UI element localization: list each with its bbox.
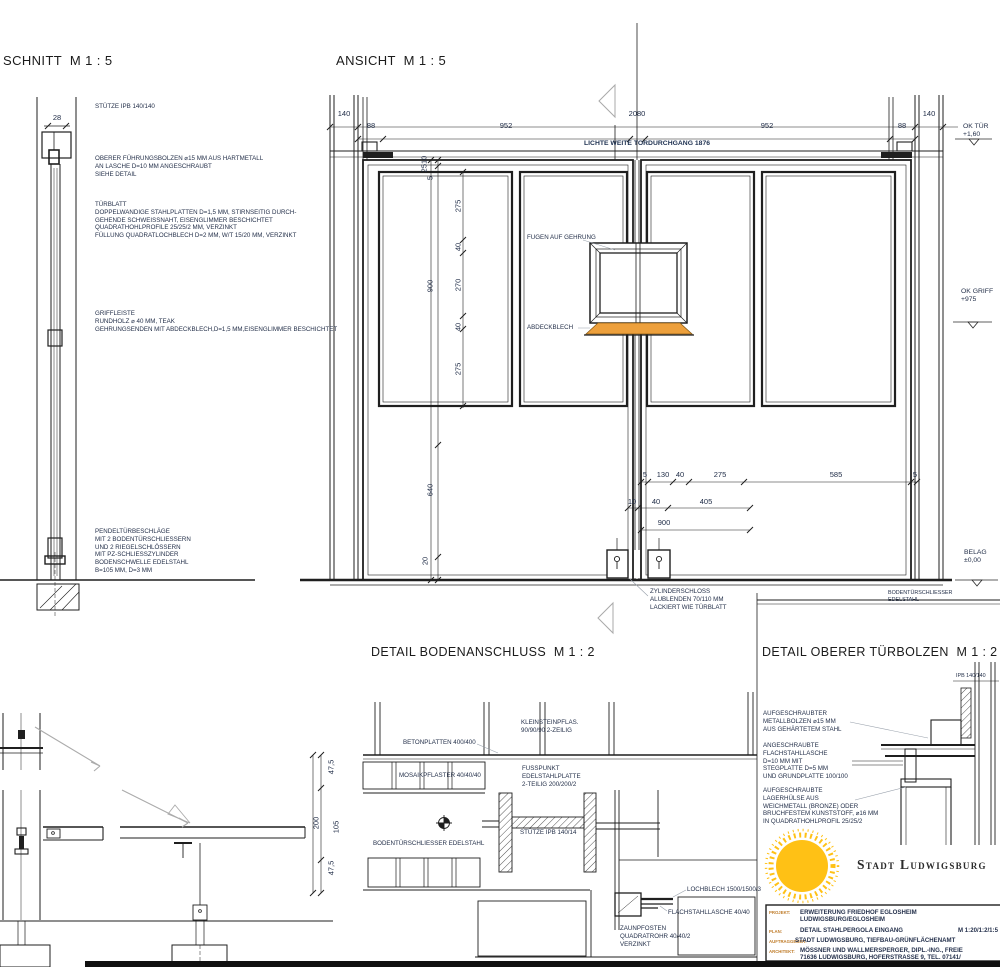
dim-label: 275 bbox=[454, 200, 463, 213]
dim-label: 140 bbox=[338, 109, 351, 118]
label-fugen: FUGEN AUF GEHRUNG bbox=[527, 234, 596, 242]
dim-label: 5 bbox=[913, 470, 917, 479]
dim-label: 40 bbox=[676, 470, 684, 479]
dim-label: 640 bbox=[426, 484, 435, 497]
titleblock-row-value: ERWEITERUNG FRIEDHOF EGLOSHEIM LUDWIGSBU… bbox=[800, 909, 917, 923]
label-tuerblatt: TÜRBLATT DOPPELWANDIGE STAHLPLATTEN D=1,… bbox=[95, 201, 296, 240]
dim-label: 130 bbox=[657, 470, 670, 479]
label-betonplatten: BETONPLATTEN 400/400 bbox=[403, 739, 476, 747]
label-bodentuerschliesser-ansicht: BODENTÜRSCHLIESSER EDELSTAHL bbox=[888, 590, 952, 604]
dim-label: 20 bbox=[421, 557, 430, 565]
dim-label: 47,5 bbox=[327, 760, 336, 775]
titleblock-plan-scale: M 1:20/1:2/1:5 bbox=[958, 927, 1000, 934]
label-metallbolzen: AUFGESCHRAUBTER METALLBOLZEN ⌀15 MM AUS … bbox=[763, 710, 842, 733]
view-direction-icon bbox=[598, 85, 615, 633]
label-fusspunkt: FUSSPUNKT EDELSTAHLPLATTE 2-TEILIG 200/2… bbox=[522, 765, 581, 788]
dim-label: 585 bbox=[830, 470, 843, 479]
titleblock-row-label: PROJEKT: bbox=[769, 910, 790, 915]
dim-label: 10 bbox=[628, 497, 636, 506]
label-ipb-profil: IPB 140/140 bbox=[956, 673, 986, 680]
label-flachstahllasche-detail: ANGESCHRAUBTE FLACHSTAHLLASCHE D=10 MM M… bbox=[763, 742, 848, 781]
dim-label: 200 bbox=[312, 817, 321, 830]
titleblock-row-label: PLAN: bbox=[769, 929, 782, 934]
dim-label: 405 bbox=[700, 497, 713, 506]
sun-logo-icon bbox=[766, 830, 838, 902]
dim-label: 140 bbox=[923, 109, 936, 118]
dim-label: 275 bbox=[454, 363, 463, 376]
titleblock-row-label: ARCHITEKT: bbox=[769, 949, 795, 954]
dim-label: 900 bbox=[426, 280, 435, 293]
dim-label: 2510 bbox=[420, 156, 429, 173]
label-abdeckblech: ABDECKBLECH bbox=[527, 324, 573, 332]
dim-label: 40 bbox=[652, 497, 660, 506]
dim-label: 5 bbox=[643, 470, 647, 479]
label-ok-griffleiste: OK GRIFF +975 bbox=[961, 288, 993, 305]
titleblock-row-value: MÖSSNER UND WALLMERSPERGER, DIPL.-ING., … bbox=[800, 947, 1000, 961]
detail-boden-title: DETAIL BODENANSCHLUSS M 1 : 2 bbox=[371, 645, 595, 659]
label-zylinderschloss: ZYLINDERSCHLOSS ALUBLENDEN 70/110 MM LAC… bbox=[650, 588, 727, 611]
dim-label: 40 bbox=[454, 243, 463, 251]
ansicht-title: ANSICHT M 1 : 5 bbox=[336, 53, 446, 68]
label-ok-tuer: OK TÜR +1,60 bbox=[963, 123, 989, 140]
dim-label: 2080 bbox=[629, 109, 646, 118]
ansicht-drawing bbox=[300, 23, 1000, 961]
abdeckblech-bar bbox=[586, 323, 692, 334]
label-pendeltuerbeschlaege: PENDELTÜRBESCHLÄGE MIT 2 BODENTÜRSCHLIES… bbox=[95, 528, 191, 575]
titleblock-row-value: STADT LUDWIGSBURG, TIEFBAU-GRÜNFLÄCHENAM… bbox=[795, 937, 955, 944]
label-mosaikpflaster: MOSAIKPFLASTER 40/40/40 bbox=[399, 772, 481, 780]
keyhole-icon bbox=[614, 556, 661, 569]
dim-label: 88 bbox=[898, 121, 906, 130]
survey-point-icon bbox=[436, 815, 452, 831]
label-bodentuerschliesser: BODENTÜRSCHLIESSER EDELSTAHL bbox=[373, 840, 484, 848]
level-marker-icon bbox=[953, 139, 998, 586]
dim-label: 5 bbox=[426, 176, 435, 180]
brand-wordmark: Stadt Ludwigsburg bbox=[857, 857, 987, 873]
label-flachstahllasche: FLACHSTAHLLASCHE 40/40 bbox=[668, 909, 750, 917]
label-belag: BELAG ±0,00 bbox=[964, 549, 987, 566]
label-kleinsteinpflaster: KLEINSTEINPFLAS. 90/90/90 2-ZEILIG bbox=[521, 719, 578, 735]
dim-label: 105 bbox=[332, 821, 341, 834]
label-zaunpfosten: ZAUNPFOSTEN QUADRATROHR 40/40/2 VERZINKT bbox=[620, 925, 690, 948]
label-lichte-weite: LICHTE WEITE TORDURCHGANG 1876 bbox=[584, 140, 710, 147]
label-fuehrungsbolzen: OBERER FÜHRUNGSBOLZEN ⌀15 MM AUS HARTMET… bbox=[95, 155, 263, 178]
schnitt-title: SCHNITT M 1 : 5 bbox=[3, 53, 112, 68]
dim-label: 47,5 bbox=[327, 861, 336, 876]
plan-sheet: SCHNITT M 1 : 5 ANSICHT M 1 : 5 DETAIL B… bbox=[0, 0, 1000, 967]
dim-label: 900 bbox=[658, 518, 671, 527]
detail-bolzen-title: DETAIL OBERER TÜRBOLZEN M 1 : 2 bbox=[762, 645, 998, 659]
dim-label: 952 bbox=[500, 121, 513, 130]
label-lochblech: LOCHBLECH 1500/1500/3 bbox=[687, 886, 761, 894]
titleblock-row-value: DETAIL STAHLPERGOLA EINGANG bbox=[800, 927, 903, 934]
label-lagerhuelse: AUFGESCHRAUBTE LAGERHÜLSE AUS WEICHMETAL… bbox=[763, 787, 878, 826]
dim-label: 275 bbox=[714, 470, 727, 479]
dim-label: 88 bbox=[367, 121, 375, 130]
label-stuetze: STÜTZE IPB 140/140 bbox=[95, 103, 155, 111]
dim-label: 40 bbox=[454, 323, 463, 331]
label-griffleiste: GRIFFLEISTE RUNDHOLZ ⌀ 40 MM, TEAK GEHRU… bbox=[95, 310, 337, 333]
bottom-left-section-drawing bbox=[0, 713, 333, 967]
dim-label: 952 bbox=[761, 121, 774, 130]
dim-label: 270 bbox=[454, 279, 463, 292]
label-stuetze-ipb: STÜTZE IPB 140/14 bbox=[520, 829, 576, 837]
dim-label: 28 bbox=[53, 113, 61, 122]
